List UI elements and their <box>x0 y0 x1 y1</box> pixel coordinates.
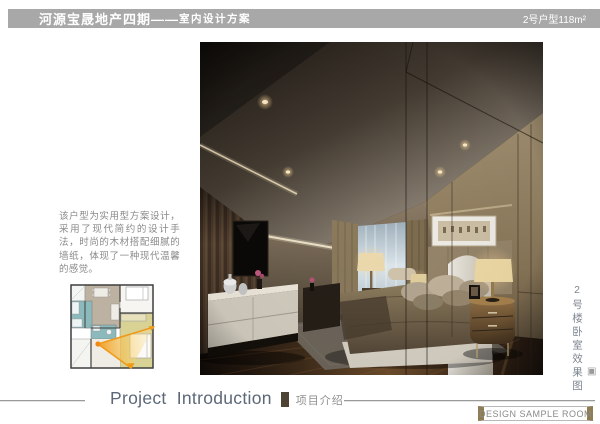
rendering-caption-vertical: 2号楼卧室效果图 <box>570 284 585 404</box>
floor-plan-thumbnail <box>64 282 160 371</box>
footer-divider-right <box>344 400 595 402</box>
section-title: Project Introduction 项目介绍 <box>110 388 344 409</box>
presentation-slide: 河源宝晟地产四期—— 室内设计方案 2号户型118m² 该户型为实用型方案设计，… <box>0 0 600 424</box>
section-title-divider-bar <box>281 392 289 407</box>
section-title-en: Project Introduction <box>110 388 272 409</box>
header-subtitle: 室内设计方案 <box>179 11 251 26</box>
footer-divider-left <box>0 400 85 402</box>
bedroom-rendering-drawing <box>200 42 543 375</box>
design-description-text: 该户型为实用型方案设计，采用了现代简约的设计手法，时尚的木材搭配细腻的墙纸，体现… <box>59 210 180 276</box>
header-bar: 河源宝晟地产四期—— 室内设计方案 2号户型118m² <box>8 9 600 28</box>
corner-mark-icon: ▣ <box>587 367 596 377</box>
bedroom-rendering-image <box>200 42 543 375</box>
unit-type-label: 2号户型118m² <box>523 11 586 26</box>
project-title: 河源宝晟地产四期—— <box>39 9 179 28</box>
design-sample-room-badge: DESIGN SAMPLE ROOM <box>478 406 593 421</box>
section-title-cn: 项目介绍 <box>296 392 344 408</box>
floor-plan-drawing <box>64 282 160 371</box>
